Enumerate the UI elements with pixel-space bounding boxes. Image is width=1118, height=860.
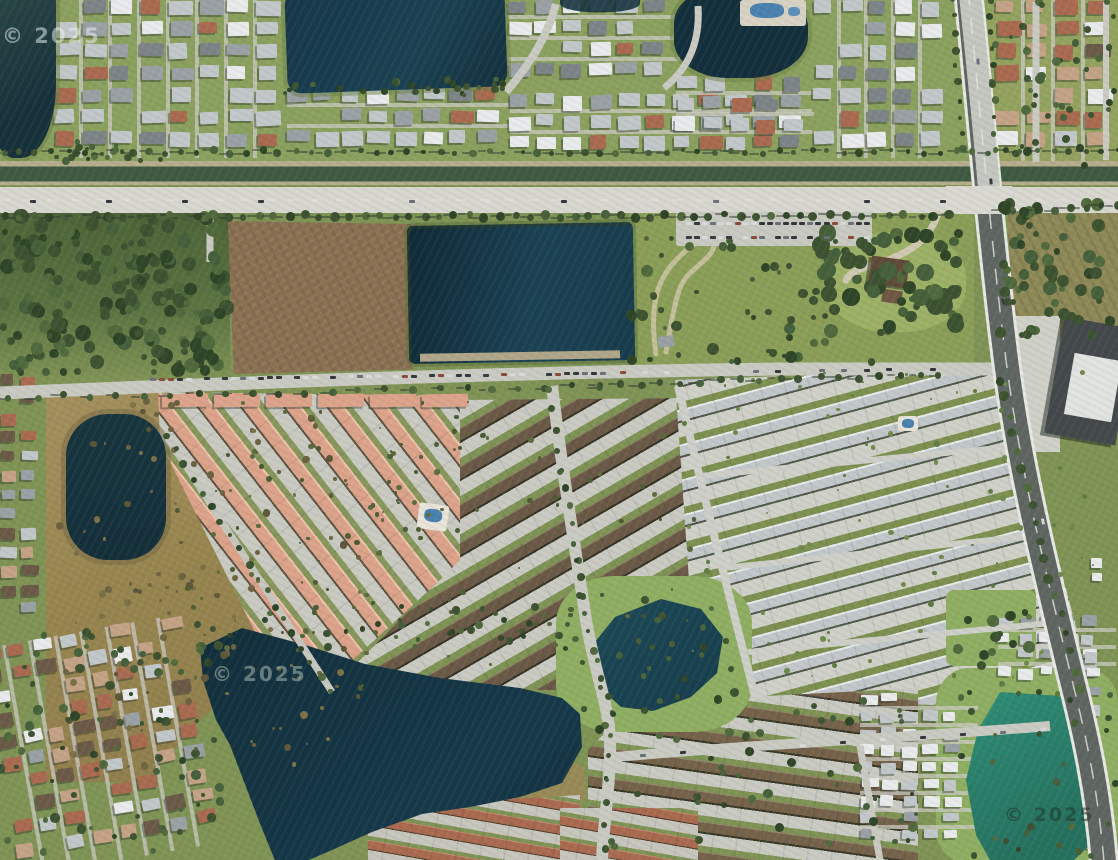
tree-icon [1062,762,1066,766]
tree-icon [493,638,496,641]
tree-icon [1052,592,1058,598]
tree-icon [765,309,772,316]
car [150,378,156,381]
car [561,200,567,203]
tree-icon [50,813,60,823]
car [411,374,417,377]
tree-icon [358,685,363,690]
car [686,222,692,225]
tree-icon [310,82,316,88]
tree-icon [574,558,579,563]
tree-icon [724,384,727,387]
tree-icon [346,483,348,485]
tree-icon [154,412,159,417]
tree-icon [1088,853,1094,859]
tree-shadow [1088,204,1098,206]
tree-icon [641,673,647,679]
tree-icon [582,611,587,616]
satellite-map-canvas[interactable]: © 2025 © 2025 © 2025 [0,0,1118,860]
tree-icon [178,149,184,155]
tree-icon [1075,284,1087,296]
tree-icon [161,717,171,727]
tree-icon [634,791,640,797]
tree-icon [725,728,734,737]
tree-icon [399,443,402,446]
tree-icon [398,618,402,622]
tree-icon [1039,554,1047,562]
tree-icon [34,219,48,233]
tree-icon [640,484,645,489]
tree-icon [174,446,179,451]
car [710,236,716,239]
tree-icon [830,715,837,722]
tree-icon [1028,88,1033,93]
tree-icon [780,516,784,520]
tree-icon [128,240,134,246]
tree-icon [826,840,832,846]
tree-icon [316,446,321,451]
tree-icon [637,310,648,321]
tree-icon [669,641,675,647]
tree-icon [810,339,818,347]
tree-icon [1019,269,1029,279]
car [204,377,210,380]
tree-icon [616,652,623,659]
tree-shadow [382,217,393,219]
tree-icon [224,645,230,651]
tree-icon [821,338,829,346]
tree-icon [130,833,137,840]
tree-icon [605,778,609,782]
tree-icon [480,606,486,612]
tree-icon [1058,572,1062,576]
tree-icon [548,405,556,413]
tree-icon [111,650,119,658]
tree-icon [1067,697,1073,703]
tree-icon [59,704,68,713]
car [501,373,507,376]
tree-icon [1033,520,1039,526]
car [807,236,813,239]
car [864,222,870,225]
tree-icon [953,644,963,654]
tree-icon [139,317,147,325]
car [726,222,732,225]
tree-icon [55,241,61,247]
tree-icon [140,409,145,414]
tree-icon [843,474,846,477]
tree-icon [90,751,98,759]
tree-icon [580,593,586,599]
tree-icon [992,96,999,103]
tree-icon [898,714,902,718]
tree-icon [582,522,584,524]
tree-icon [281,631,284,634]
tree-icon [240,214,247,221]
tree-icon [151,456,157,462]
tree-icon [489,663,492,666]
tree-icon [297,676,300,679]
tree-icon [501,617,507,623]
tree-shadow [767,377,774,379]
tree-icon [897,708,902,713]
tree-shadow [667,216,677,218]
tree-icon [720,770,726,776]
tree-icon [252,743,256,747]
tree-icon [1021,105,1031,115]
tree-icon [42,368,51,377]
tree-icon [155,754,163,762]
tree-icon [610,711,616,717]
tree-icon [408,82,415,89]
tree-icon [798,385,802,389]
tree-icon [288,629,295,636]
tree-icon [999,408,1004,413]
tree-icon [787,316,795,324]
tree-icon [292,762,297,767]
tree-icon [1018,525,1024,531]
car [664,371,670,374]
tree-icon [113,333,125,345]
tree-icon [742,732,750,740]
tree-icon [341,149,347,155]
car [791,236,797,239]
tree-icon [1028,326,1035,333]
tree-icon [89,826,93,830]
tree-shadow [395,216,405,218]
tree-icon [553,427,559,433]
car [582,372,588,375]
tree-icon [75,325,91,341]
tree-icon [1045,569,1047,571]
tree-icon [149,256,160,267]
tree-icon [1105,316,1114,325]
tree-icon [498,635,504,641]
tree-icon [1017,149,1022,154]
tree-icon [458,446,462,450]
tree-icon [827,631,830,634]
tree-icon [756,378,762,384]
tree-icon [1111,88,1117,94]
tree-icon [119,214,127,222]
tree-icon [1017,233,1024,240]
tree-icon [751,315,756,320]
tree-icon [63,669,69,675]
car [177,378,183,381]
tree-icon [999,287,1009,297]
tree-icon [811,703,817,709]
tree-icon [853,763,862,772]
tree-icon [663,326,667,330]
tree-icon [358,148,363,153]
tree-icon [215,490,218,493]
tree-icon [898,818,904,824]
tree-icon [1040,650,1045,655]
tree-icon [949,237,959,247]
tree-icon [971,544,973,546]
car [920,736,926,739]
tree-icon [396,485,402,491]
tree-icon [475,508,479,512]
car [330,376,336,379]
tree-icon [603,799,610,806]
tree-icon [993,733,997,737]
tree-icon [1002,455,1008,461]
tree-icon [126,445,131,450]
tree-icon [194,676,197,679]
tree-icon [425,86,430,91]
tree-icon [521,150,525,154]
tree-icon [918,629,923,634]
tree-icon [421,150,425,154]
tree-icon [426,513,430,517]
tree-icon [176,308,185,317]
tree-icon [1073,315,1083,325]
tree-icon [1072,39,1080,47]
tree-icon [390,450,392,452]
tree-icon [939,555,943,559]
tree-icon [49,349,59,359]
tree-icon [130,402,137,409]
tree-icon [337,669,344,676]
tree-icon [308,415,312,419]
tree-icon [947,316,964,333]
tree-icon [644,236,650,242]
tree-icon [469,150,476,157]
tree-icon [416,637,421,642]
tree-icon [641,596,649,604]
tree-icon [992,115,996,119]
tree-icon [677,381,683,387]
tree-icon [303,628,309,634]
tree-icon [24,293,33,302]
tree-icon [220,284,232,296]
tree-icon [595,658,600,663]
tree-icon [60,391,67,398]
tree-icon [918,372,924,378]
tree-icon [515,386,521,392]
tree-icon [1033,93,1038,98]
tree-icon [1031,102,1037,108]
tree-icon [210,146,218,154]
tree-icon [117,719,124,726]
tree-icon [636,638,642,644]
tree-icon [204,658,213,667]
tree-icon [207,353,219,365]
tree-icon [31,240,46,255]
tree-icon [1012,676,1014,678]
car [258,200,264,203]
tree-shadow [887,374,896,376]
tree-icon [990,46,995,51]
car [880,738,886,741]
car [799,222,805,225]
tree-icon [180,339,189,348]
tree-icon [761,611,765,615]
car [960,733,966,736]
tree-icon [1088,330,1096,338]
tree-shadow [21,215,31,217]
tree-icon [899,719,904,724]
tree-icon [388,480,391,483]
tree-icon [534,622,538,626]
car [564,372,570,375]
tree-icon [587,478,592,483]
car [429,374,435,377]
tree-icon [195,719,199,723]
tree-icon [946,485,949,488]
tree-icon [307,660,312,665]
tree-icon [67,149,71,153]
tree-icon [381,88,388,95]
tree-icon [179,460,187,468]
tree-icon [1088,112,1094,118]
car [800,743,806,746]
tree-shadow [608,383,617,385]
tree-icon [453,448,456,451]
tree-icon [26,354,33,361]
tree-icon [687,546,693,552]
tree-icon [391,451,396,456]
tree-icon [832,663,837,668]
tree-icon [871,213,877,219]
tree-icon [14,235,21,242]
tree-icon [852,275,861,284]
tree-shadow [82,214,91,216]
tree-icon [60,368,67,375]
tree-shadow [350,150,358,152]
tree-icon [868,659,872,663]
tree-icon [162,657,169,664]
tree-icon [767,642,771,646]
tree-icon [163,433,169,439]
tree-icon [214,641,222,649]
tree-icon [775,823,784,832]
tree-icon [1072,668,1081,677]
tree-icon [875,372,883,380]
tree-icon [1019,332,1025,338]
tree-icon [1041,242,1050,251]
tree-icon [179,757,186,764]
tree-icon [1029,501,1037,509]
tree-shadow [400,389,408,391]
tree-icon [392,79,398,85]
car [409,200,415,203]
car [856,222,862,225]
tree-icon [883,320,897,334]
tree-icon [704,213,712,221]
tree-icon [717,376,725,384]
tree-icon [996,631,1003,638]
tree-icon [243,150,250,157]
car [357,375,363,378]
tree-icon [82,150,88,156]
tree-icon [148,583,152,587]
car [840,741,846,744]
tree-icon [302,456,309,463]
tree-icon [364,651,369,656]
tree-icon [394,491,397,494]
tree-shadow [768,150,777,152]
tree-icon [164,305,177,318]
car [348,375,354,378]
tree-icon [1014,448,1022,456]
tree-icon [1052,523,1056,527]
tree-icon [676,352,681,357]
car [694,236,700,239]
tree-icon [259,464,264,469]
car [848,222,854,225]
tree-icon [871,445,875,449]
tree-icon [956,391,958,393]
tree-icon [207,471,215,479]
tree-icon [1056,842,1063,849]
car [864,200,870,203]
tree-icon [263,509,271,517]
tree-icon [140,721,145,726]
car [864,236,870,239]
tree-icon [1023,47,1031,55]
tree-icon [647,357,653,363]
tree-icon [904,535,909,540]
tree-shadow [456,387,464,389]
tree-icon [944,210,953,219]
tree-icon [617,380,624,387]
tree-icon [736,773,741,778]
car [366,375,372,378]
tree-icon [194,150,199,155]
tree-icon [160,634,167,641]
tree-icon [273,149,281,157]
tree-icon [894,236,903,245]
tree-icon [283,91,287,95]
tree-icon [200,365,210,375]
tree-icon [572,636,579,643]
tree-icon [887,665,889,667]
tree-shadow [909,216,917,218]
tree-icon [879,262,896,279]
tree-icon [0,324,7,331]
tree-icon [952,30,959,37]
tree-icon [168,402,175,409]
tree-icon [571,541,576,546]
tree-icon [32,305,45,318]
tree-icon [1027,823,1035,831]
tree-icon [448,598,452,602]
tree-icon [306,743,308,745]
tree-icon [547,622,552,627]
tree-icon [2,229,8,235]
tree-icon [113,147,119,153]
tree-icon [647,666,651,670]
tree-icon [1084,205,1090,211]
tree-icon [309,150,314,155]
tree-icon [820,262,836,278]
car [519,373,525,376]
tree-icon [54,155,59,160]
tree-icon [1080,370,1085,375]
tree-icon [318,673,326,681]
tree-icon [220,490,225,495]
tree-icon [910,792,914,796]
tree-icon [845,717,854,726]
tree-icon [1104,0,1110,5]
tree-icon [214,593,220,599]
tree-icon [659,253,664,258]
tree-icon [1073,57,1080,64]
tree-icon [953,63,958,68]
car [591,372,597,375]
